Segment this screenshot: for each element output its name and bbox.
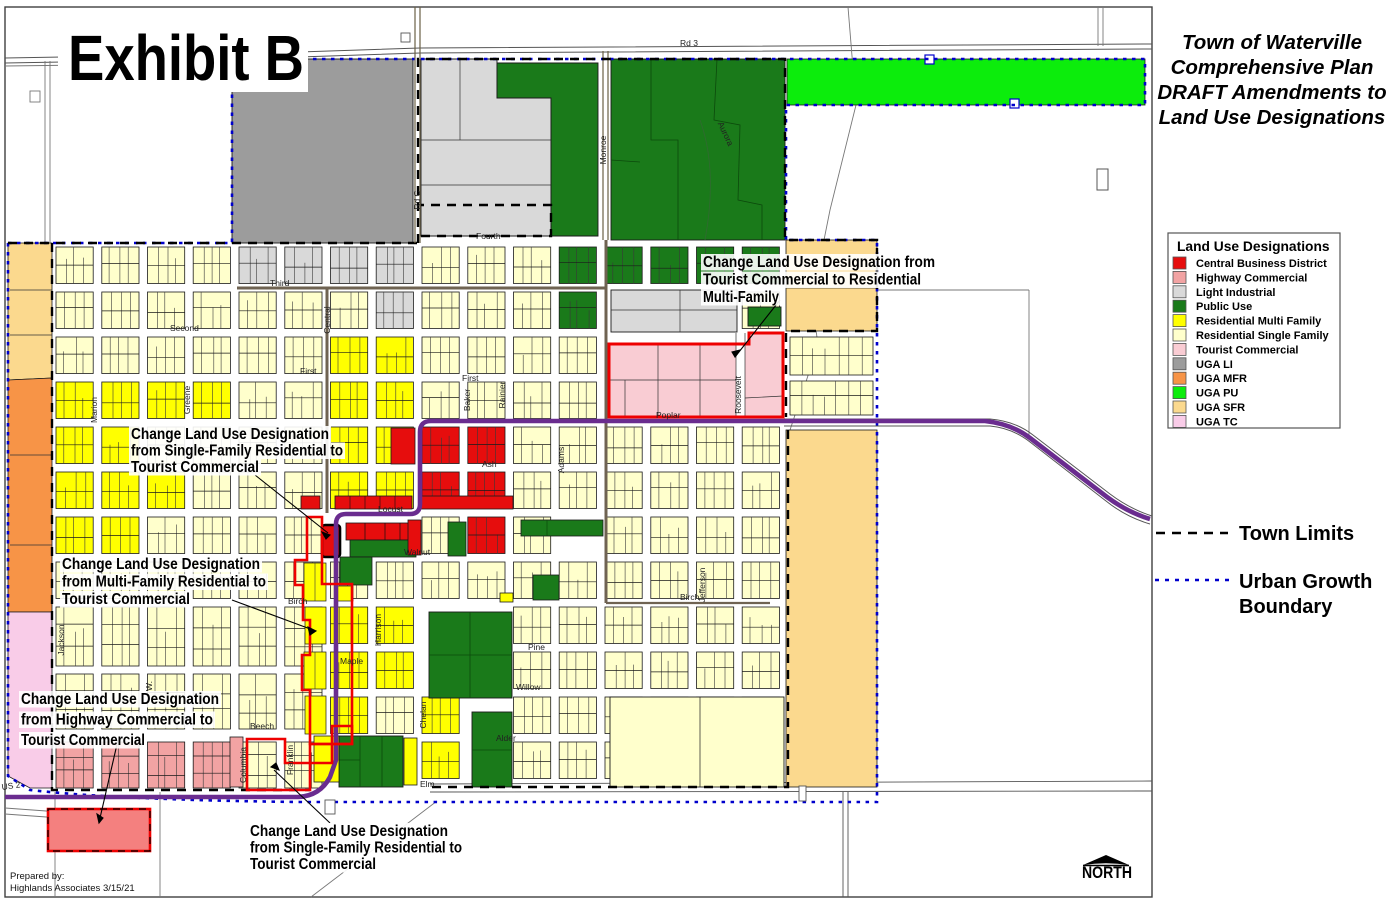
svg-text:DRAFT Amendments to: DRAFT Amendments to xyxy=(1157,81,1386,104)
svg-text:Poplar: Poplar xyxy=(656,410,681,420)
svg-text:Marion: Marion xyxy=(89,397,99,423)
svg-text:Baker: Baker xyxy=(462,389,472,411)
svg-text:Comprehensive Plan: Comprehensive Plan xyxy=(1171,56,1374,79)
svg-text:Multi-Family: Multi-Family xyxy=(703,289,779,306)
svg-text:from Multi-Family Residential: from Multi-Family Residential to xyxy=(62,574,266,591)
svg-text:UGA SFR: UGA SFR xyxy=(1196,402,1245,414)
svg-text:Highway Commercial: Highway Commercial xyxy=(1196,272,1307,284)
svg-text:Central: Central xyxy=(322,306,332,334)
svg-text:Chelan: Chelan xyxy=(418,701,428,728)
svg-text:Jefferson: Jefferson xyxy=(697,567,707,602)
svg-text:Central Business District: Central Business District xyxy=(1196,258,1327,270)
svg-text:Tourist Commercial: Tourist Commercial xyxy=(1196,344,1299,356)
svg-text:Public Use: Public Use xyxy=(1196,301,1252,313)
svg-text:UGA LI: UGA LI xyxy=(1196,359,1233,371)
svg-text:Tourist Commercial: Tourist Commercial xyxy=(250,856,376,873)
svg-text:Columbia: Columbia xyxy=(238,747,248,783)
svg-text:Greene: Greene xyxy=(182,386,192,415)
svg-text:Ash: Ash xyxy=(482,459,497,469)
svg-text:Residential Multi Family: Residential Multi Family xyxy=(1196,316,1322,328)
svg-text:Land Use Designations: Land Use Designations xyxy=(1159,106,1386,129)
svg-text:Exhibit B: Exhibit B xyxy=(68,22,304,94)
svg-text:Birch: Birch xyxy=(288,596,308,606)
svg-text:Franklin: Franklin xyxy=(285,745,295,776)
svg-text:from Single-Family Residential: from Single-Family Residential to xyxy=(250,840,462,857)
svg-text:UGA PU: UGA PU xyxy=(1196,388,1238,400)
svg-text:Town of Waterville: Town of Waterville xyxy=(1182,31,1362,54)
svg-text:UGA TC: UGA TC xyxy=(1196,416,1238,428)
svg-text:Light Industrial: Light Industrial xyxy=(1196,287,1275,299)
svg-text:Change Land Use Designation: Change Land Use Designation xyxy=(21,691,219,708)
svg-text:Land Use Designations: Land Use Designations xyxy=(1177,239,1330,254)
svg-text:Maple: Maple xyxy=(340,656,363,666)
svg-text:from Highway Commercial to: from Highway Commercial to xyxy=(21,712,213,729)
svg-text:Prepared by:: Prepared by: xyxy=(10,871,64,882)
svg-text:Rd 3: Rd 3 xyxy=(680,38,698,48)
svg-text:Town Limits: Town Limits xyxy=(1239,523,1354,545)
svg-text:Tourist Commercial to Resident: Tourist Commercial to Residential xyxy=(703,272,921,289)
svg-text:First: First xyxy=(462,373,479,383)
svg-text:Change Land Use Designation: Change Land Use Designation xyxy=(131,426,329,443)
svg-text:Adams: Adams xyxy=(556,447,566,473)
svg-text:W.: W. xyxy=(144,681,154,691)
svg-text:Residential Single Family: Residential Single Family xyxy=(1196,330,1330,342)
svg-text:Elm: Elm xyxy=(420,779,435,789)
svg-text:Boundary: Boundary xyxy=(1239,596,1333,618)
svg-text:Willow: Willow xyxy=(516,682,541,692)
svg-text:from Single-Family Residential: from Single-Family Residential to xyxy=(131,443,343,460)
svg-text:Pine: Pine xyxy=(528,642,545,652)
svg-text:UGA MFR: UGA MFR xyxy=(1196,373,1247,385)
svg-text:Tourist Commercial: Tourist Commercial xyxy=(131,459,259,476)
svg-text:Highlands Associates 3/15/21: Highlands Associates 3/15/21 xyxy=(10,883,135,894)
svg-text:Roosevelt: Roosevelt xyxy=(733,375,743,413)
svg-text:Tourist Commercial: Tourist Commercial xyxy=(62,591,190,608)
svg-text:Locust: Locust xyxy=(378,504,404,514)
svg-text:Fourth: Fourth xyxy=(476,231,501,241)
svg-text:Change Land Use Designation: Change Land Use Designation xyxy=(62,556,260,573)
svg-text:Harrison: Harrison xyxy=(373,614,383,646)
svg-text:Third: Third xyxy=(270,278,290,288)
svg-text:Urban Growth: Urban Growth xyxy=(1239,571,1372,593)
svg-text:Jackson: Jackson xyxy=(56,624,66,655)
svg-text:Rd C: Rd C xyxy=(412,190,422,209)
svg-text:Walnut: Walnut xyxy=(404,547,431,557)
svg-text:Change Land Use Designation fr: Change Land Use Designation from xyxy=(703,254,935,271)
svg-text:NORTH: NORTH xyxy=(1082,864,1132,882)
svg-text:Beech: Beech xyxy=(250,721,274,731)
svg-text:Rainier: Rainier xyxy=(497,381,507,408)
svg-text:First: First xyxy=(300,366,317,376)
svg-text:Second: Second xyxy=(170,323,199,333)
svg-text:Change Land Use Designation: Change Land Use Designation xyxy=(250,823,448,840)
svg-text:Tourist Commercial: Tourist Commercial xyxy=(21,732,145,749)
svg-text:Monroe: Monroe xyxy=(598,135,608,164)
svg-text:Alder: Alder xyxy=(496,733,516,743)
